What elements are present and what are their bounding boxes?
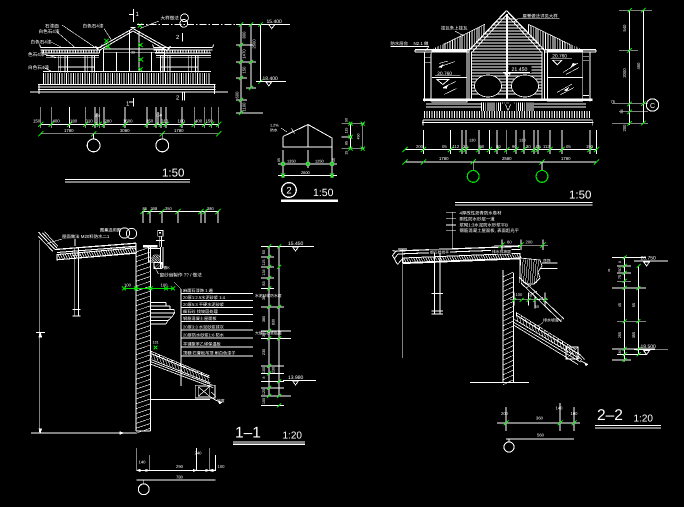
svg-text:60: 60 (535, 304, 540, 309)
svg-text:112: 112 (543, 144, 550, 149)
svg-text:浆砌1:3水泥防水砂浆平B: 浆砌1:3水泥防水砂浆平B (460, 223, 509, 228)
svg-text:310: 310 (86, 119, 94, 124)
svg-text:200: 200 (416, 144, 424, 149)
svg-text:450: 450 (357, 134, 361, 140)
svg-text:350: 350 (146, 119, 154, 124)
svg-text:平铺聚苯乙烯保温板: 平铺聚苯乙烯保温板 (183, 341, 222, 346)
svg-text:白色石4漆: 白色石4漆 (28, 65, 49, 70)
svg-text:800: 800 (242, 31, 247, 39)
svg-text:8: 8 (608, 269, 610, 273)
svg-text:3080: 3080 (120, 128, 130, 133)
svg-text:45: 45 (618, 303, 622, 307)
svg-text:05: 05 (566, 144, 571, 149)
svg-text:05: 05 (277, 158, 281, 162)
svg-text:2: 2 (286, 186, 291, 197)
svg-text:55: 55 (632, 303, 636, 307)
svg-text:150: 150 (33, 119, 41, 124)
svg-text:85: 85 (143, 206, 148, 211)
svg-text:2580: 2580 (502, 156, 512, 161)
svg-text:200: 200 (501, 411, 509, 416)
svg-text:石漆面: 石漆面 (45, 23, 59, 28)
svg-text:挂瓦条上挂瓦: 挂瓦条上挂瓦 (441, 26, 468, 31)
svg-text:255: 255 (618, 332, 622, 338)
svg-text:450: 450 (636, 62, 641, 70)
svg-text:1470: 1470 (242, 49, 247, 59)
svg-text:20厚5:3 干硬水泥砂浆: 20厚5:3 干硬水泥砂浆 (183, 302, 225, 307)
svg-text:50: 50 (345, 118, 349, 122)
svg-text:380: 380 (262, 316, 266, 322)
svg-text:N2.1 做: N2.1 做 (414, 41, 429, 46)
svg-text:白色石4漆: 白色石4漆 (83, 24, 104, 29)
svg-text:2600: 2600 (301, 170, 310, 175)
svg-text:50: 50 (618, 267, 622, 271)
svg-text:130: 130 (519, 138, 526, 143)
svg-text:540: 540 (622, 24, 627, 32)
svg-text:75: 75 (611, 99, 616, 104)
svg-text:400: 400 (195, 119, 203, 124)
svg-text:8: 8 (618, 261, 622, 263)
svg-text:230: 230 (272, 367, 276, 373)
svg-text:380: 380 (207, 206, 214, 211)
svg-text:麻面石漆饰 1 遍: 麻面石漆饰 1 遍 (183, 288, 214, 293)
svg-text:100: 100 (161, 283, 169, 288)
svg-text:细石砼 找坡层处理: 细石砼 找坡层处理 (183, 309, 218, 314)
svg-text:140: 140 (139, 460, 147, 465)
svg-text:131: 131 (153, 341, 159, 345)
svg-text:180: 180 (70, 119, 78, 124)
svg-text:18.500: 18.500 (641, 344, 657, 350)
svg-text:1350: 1350 (287, 158, 296, 163)
svg-text:05: 05 (536, 144, 541, 149)
svg-text:150: 150 (586, 144, 594, 149)
svg-text:1100: 1100 (242, 102, 247, 112)
svg-text:780: 780 (176, 475, 184, 480)
svg-text:150: 150 (206, 119, 214, 124)
svg-text:15: 15 (332, 158, 336, 162)
svg-text:112: 112 (453, 144, 460, 149)
svg-text:30: 30 (618, 350, 622, 354)
svg-text:830: 830 (272, 319, 276, 325)
svg-text:屋面做法 M20料防水二1: 屋面做法 M20料防水二1 (62, 234, 110, 239)
svg-text:140: 140 (556, 406, 564, 411)
svg-text:1–1: 1–1 (235, 425, 261, 442)
svg-text:134: 134 (262, 269, 266, 275)
svg-text:钢筋混凝土屋面板: 钢筋混凝土屋面板 (183, 316, 217, 321)
svg-text:100: 100 (571, 411, 579, 416)
svg-text:36: 36 (262, 296, 266, 300)
svg-text:290: 290 (176, 464, 184, 469)
svg-text:600: 600 (235, 91, 240, 99)
svg-text:115: 115 (262, 259, 266, 265)
svg-text:15: 15 (345, 151, 349, 155)
svg-text:360: 360 (536, 416, 544, 421)
svg-text:1780: 1780 (174, 128, 184, 133)
svg-text:1:20: 1:20 (634, 414, 654, 425)
svg-text:80: 80 (496, 144, 501, 149)
svg-text:1780: 1780 (561, 156, 571, 161)
svg-text:100: 100 (218, 464, 226, 469)
svg-text:C: C (650, 103, 655, 110)
svg-text:30: 30 (526, 144, 531, 149)
svg-text:308: 308 (151, 206, 158, 211)
svg-text:花饰: 花饰 (543, 258, 551, 263)
svg-text:85: 85 (345, 141, 349, 145)
svg-text:20.760: 20.760 (437, 71, 452, 77)
svg-text:90: 90 (512, 144, 517, 149)
svg-text:4厚改性沥青防水卷材: 4厚改性沥青防水卷材 (460, 210, 503, 215)
svg-text:200: 200 (526, 240, 534, 245)
svg-text:1:50: 1:50 (313, 187, 334, 199)
svg-text:400: 400 (53, 119, 61, 124)
svg-text:1:50: 1:50 (569, 190, 591, 202)
svg-text:75: 75 (618, 275, 622, 279)
svg-text:屋脊做法详见大样: 屋脊做法详见大样 (523, 13, 559, 18)
svg-text:310: 310 (161, 119, 169, 124)
svg-text:大样做法: 大样做法 (161, 16, 180, 21)
svg-text:白色石4漆: 白色石4漆 (31, 39, 52, 44)
svg-text:560: 560 (537, 433, 545, 438)
svg-text:1600: 1600 (123, 119, 133, 124)
svg-text:34: 34 (620, 109, 624, 113)
svg-text:90: 90 (480, 144, 485, 149)
svg-text:窗纱扇製作 ?? / 做法: 窗纱扇製作 ?? / 做法 (160, 272, 203, 277)
svg-text:钢筋混凝土屋面板, 表面赶光平: 钢筋混凝土屋面板, 表面赶光平 (460, 228, 520, 233)
svg-text:1:50: 1:50 (162, 168, 184, 180)
svg-text:20.750: 20.750 (641, 255, 657, 261)
svg-text:180: 180 (178, 119, 186, 124)
svg-text:100: 100 (262, 367, 266, 373)
svg-text:1250: 1250 (315, 158, 324, 163)
svg-text:30: 30 (262, 333, 266, 337)
svg-text:200: 200 (622, 124, 627, 132)
svg-text:30: 30 (463, 144, 468, 149)
svg-text:20厚防水砂浆1:6 防水: 20厚防水砂浆1:6 防水 (183, 332, 225, 337)
svg-text:图集选用图: 图集选用图 (100, 227, 121, 232)
svg-text:2–2: 2–2 (597, 407, 623, 424)
svg-text:60: 60 (529, 292, 533, 296)
svg-text:50: 50 (262, 250, 266, 254)
svg-text:防水层台: 防水层台 (391, 41, 409, 46)
svg-text:刚性防水砂层一道: 刚性防水砂层一道 (460, 217, 496, 222)
svg-text:83: 83 (262, 281, 266, 285)
svg-text:1780: 1780 (439, 156, 449, 161)
svg-text:30: 30 (131, 51, 135, 55)
svg-text:防水: 防水 (270, 128, 278, 133)
svg-text:1:20: 1:20 (283, 431, 303, 442)
svg-text:1780: 1780 (64, 128, 74, 133)
svg-text:115: 115 (345, 128, 349, 134)
svg-text:100: 100 (262, 398, 266, 404)
svg-text:240: 240 (195, 451, 203, 456)
svg-text:150: 150 (242, 66, 247, 74)
svg-text:80: 80 (96, 113, 101, 118)
svg-text:130: 130 (469, 138, 476, 143)
svg-text:1.2%: 1.2% (270, 124, 279, 128)
svg-text:排水坡度 1: 排水坡度 1 (543, 318, 563, 323)
svg-text:8: 8 (262, 376, 266, 378)
svg-text:直K: 直K (164, 265, 171, 270)
svg-text:坡度: 坡度 (217, 398, 225, 403)
svg-text:顶棚:石膏板吊顶 刷白色漆子: 顶棚:石膏板吊顶 刷白色漆子 (183, 350, 236, 355)
svg-text:05: 05 (442, 144, 447, 149)
svg-text:排水找坡层: 排水找坡层 (492, 249, 511, 254)
svg-text:2600: 2600 (252, 39, 257, 49)
svg-text:60: 60 (507, 240, 512, 245)
svg-text:150: 150 (155, 113, 162, 118)
svg-text:2000: 2000 (622, 68, 627, 78)
svg-text:色石4漆: 色石4漆 (28, 52, 45, 57)
svg-text:100: 100 (516, 292, 523, 297)
svg-text:20厚3:3 水泥砂浆抹灰: 20厚3:3 水泥砂浆抹灰 (183, 324, 224, 329)
svg-text:100: 100 (124, 283, 132, 288)
svg-text:280: 280 (105, 119, 113, 124)
svg-text:20厚1:2.5水泥砂浆 1:4: 20厚1:2.5水泥砂浆 1:4 (183, 295, 226, 300)
svg-text:18.400: 18.400 (263, 76, 279, 82)
svg-text:350: 350 (165, 206, 172, 211)
svg-text:230: 230 (262, 349, 266, 355)
svg-text:355: 355 (632, 332, 636, 338)
svg-text:水泥砂浆防水层: 水泥砂浆防水层 (255, 293, 282, 298)
svg-text:120: 120 (262, 389, 266, 395)
